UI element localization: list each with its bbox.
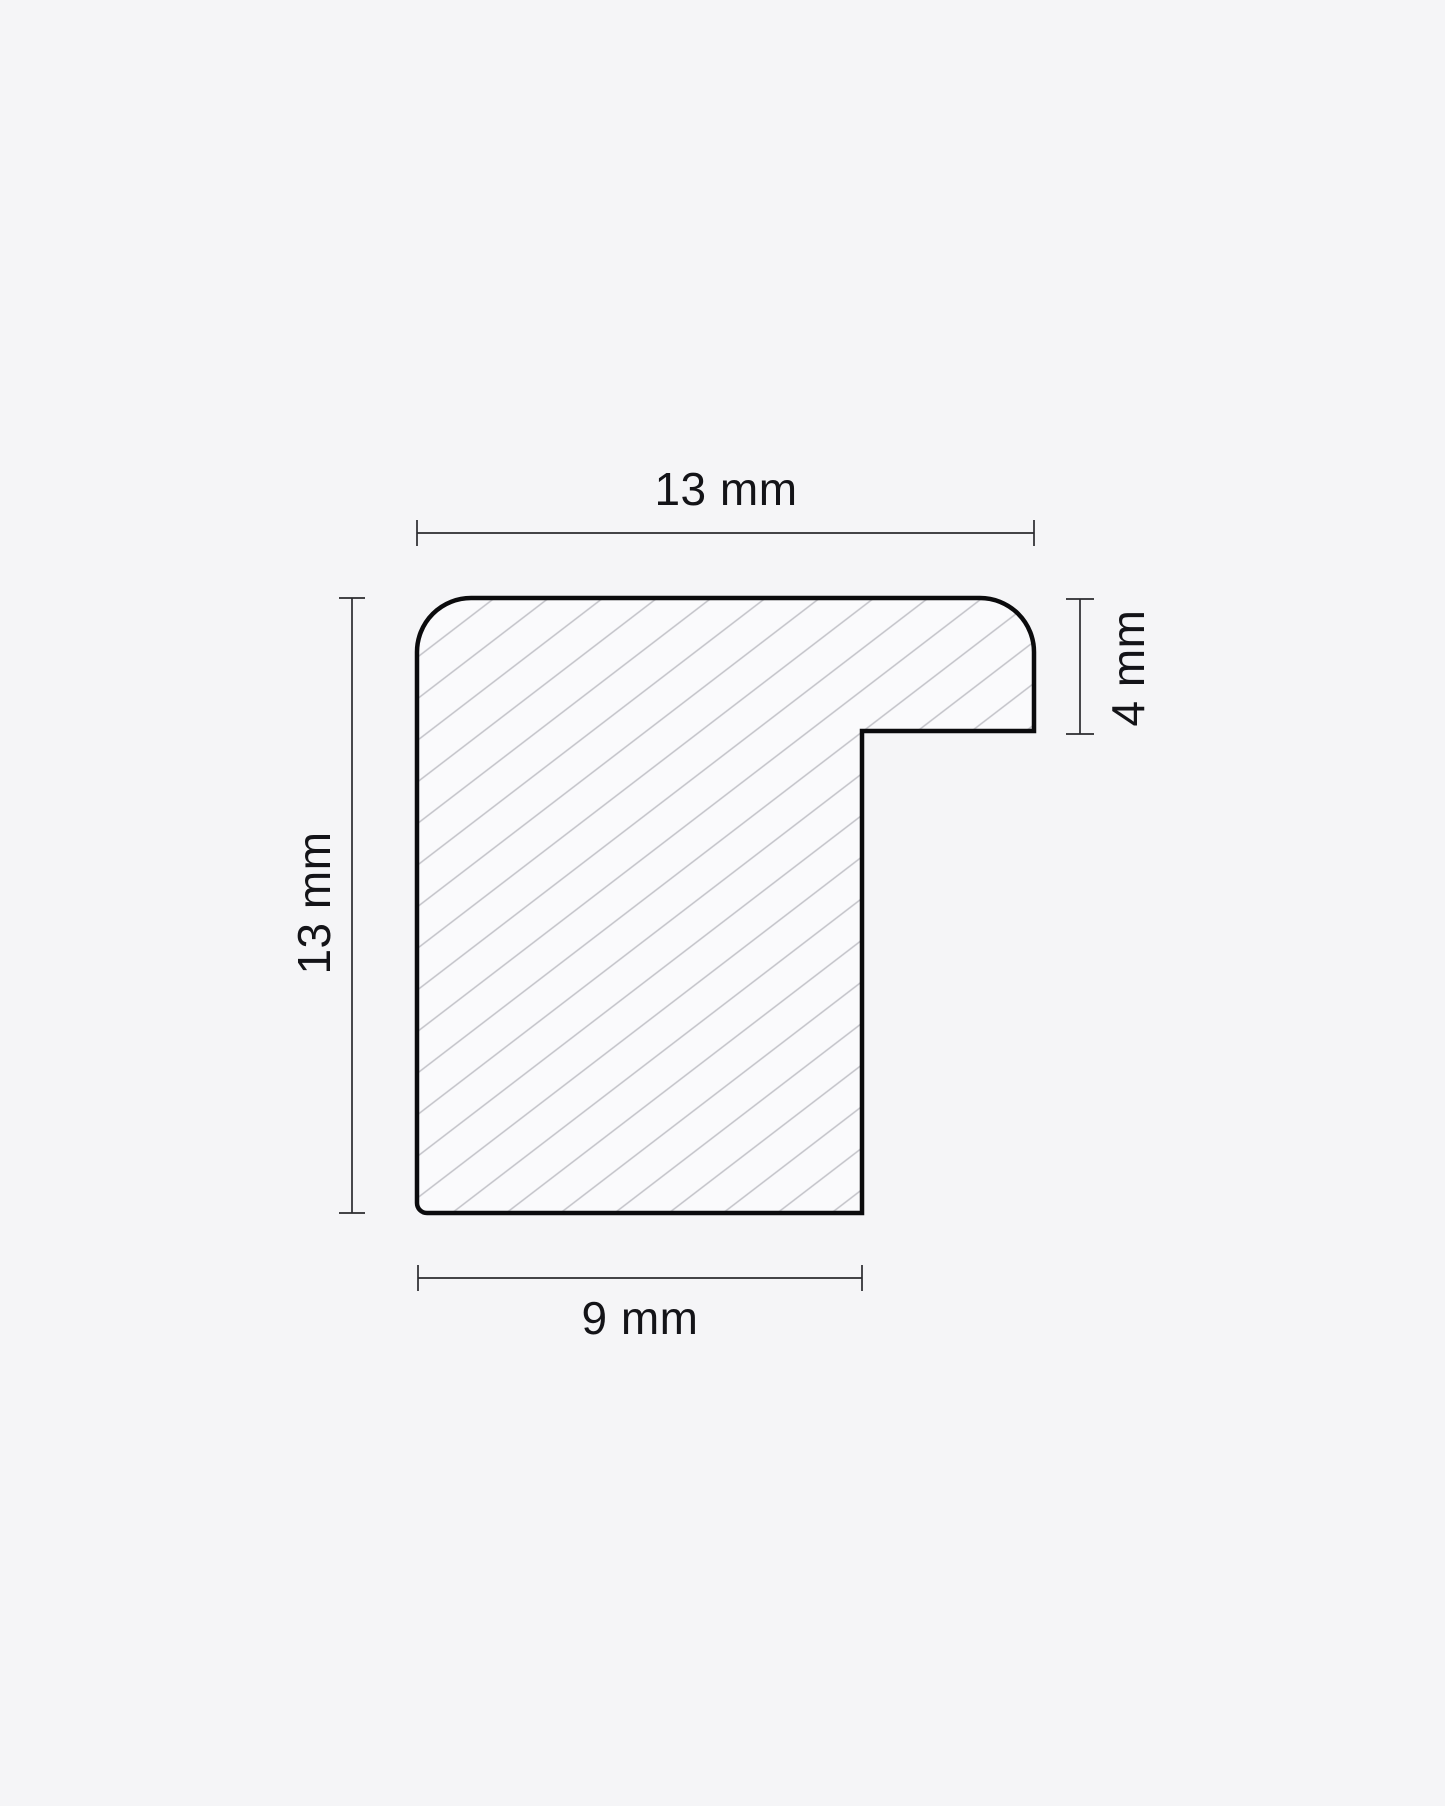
dimension-bottom: 9 mm [418,1265,862,1344]
diagram-canvas: 13 mm 13 mm 4 mm 9 mm [0,0,1445,1806]
dimension-label-bottom: 9 mm [582,1292,699,1344]
dimension-right: 4 mm [1066,599,1154,734]
profile-shape [417,598,1034,1213]
moulding-profile-diagram: 13 mm 13 mm 4 mm 9 mm [0,0,1445,1806]
page: { "diagram": { "title": "picture-frame m… [0,0,1445,1806]
dimension-label-left: 13 mm [288,831,340,974]
dimension-label-right: 4 mm [1102,610,1154,727]
dimension-left: 13 mm [288,598,365,1213]
profile-hatch [417,598,1034,1213]
dimension-label-top: 13 mm [654,463,797,515]
dimension-top: 13 mm [417,463,1034,546]
